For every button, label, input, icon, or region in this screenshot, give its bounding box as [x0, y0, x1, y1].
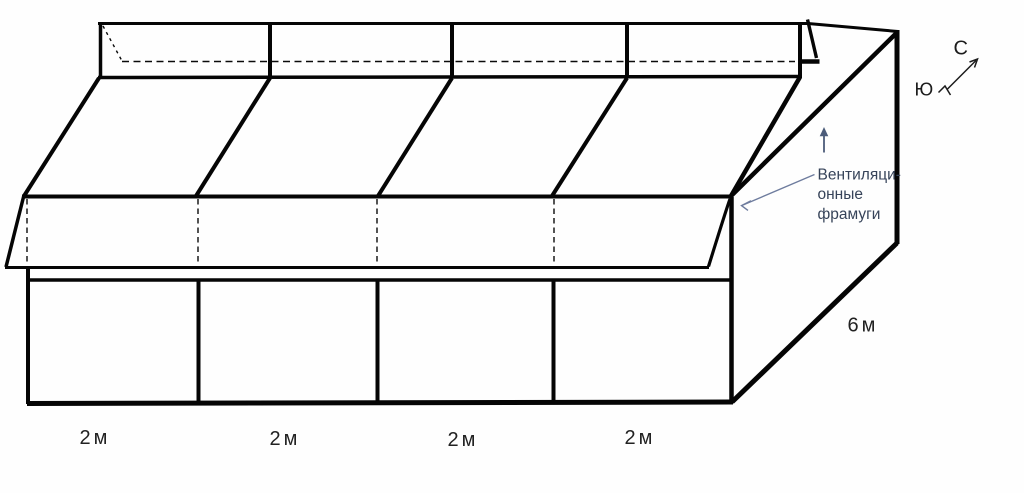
svg-text:фрамуги: фрамуги [818, 206, 881, 223]
svg-text:2м: 2м [270, 428, 301, 450]
svg-text:2м: 2м [448, 429, 479, 451]
svg-text:Вентиляци-: Вентиляци- [818, 167, 901, 184]
svg-text:6м: 6м [848, 315, 879, 337]
svg-text:онные: онные [818, 186, 864, 203]
svg-text:2м: 2м [625, 427, 656, 449]
svg-text:Ю: Ю [915, 79, 934, 100]
svg-text:2м: 2м [80, 427, 111, 449]
svg-text:С: С [954, 38, 968, 60]
